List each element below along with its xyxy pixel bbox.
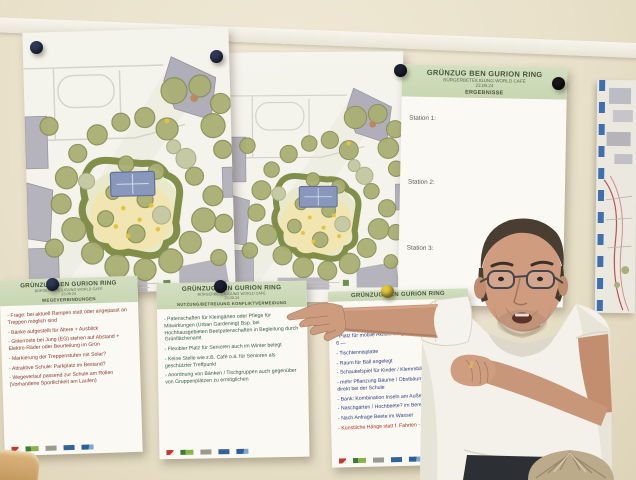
pointing-hand xyxy=(287,303,346,341)
partner-logos xyxy=(12,443,136,452)
push-pin xyxy=(552,77,565,90)
logo-blue xyxy=(218,449,229,454)
push-pin xyxy=(214,280,227,293)
push-pin xyxy=(381,285,394,298)
logo-gray xyxy=(200,449,211,454)
station-2-label: Station 2: xyxy=(408,179,435,187)
logo-green xyxy=(26,446,39,451)
logo-wave xyxy=(236,449,248,454)
flipchart-wege: GRÜNZUG BEN GURION RING BÜRGERBETEILIGUN… xyxy=(0,276,143,456)
push-pin xyxy=(394,64,407,77)
logo-wave xyxy=(81,444,93,449)
site-plan-left xyxy=(22,27,235,295)
push-pin xyxy=(30,41,43,54)
photo-meeting-room: GRÜNZUG BEN GURION RING BÜRGERBETEILIGUN… xyxy=(0,0,636,480)
push-pin xyxy=(46,278,59,291)
logo-green xyxy=(180,450,193,455)
logo-gray xyxy=(45,445,56,450)
push-pin xyxy=(210,50,223,63)
station-1-label: Station 1: xyxy=(409,115,436,123)
note-item: - Wegeverlauf passend zur Schule am Roll… xyxy=(9,369,134,389)
results-poster-header: GRÜNZUG BEN GURION RING BÜRGERBETEILIGUN… xyxy=(402,64,568,99)
presenter-man xyxy=(270,210,636,480)
poster-section: ERGEBNISSE xyxy=(404,88,565,97)
logo-red xyxy=(166,450,173,455)
site-plan-drawing xyxy=(22,27,235,295)
logo-blue xyxy=(63,445,74,450)
note-item: - Frage: bei aktuell Rampen statt oder a… xyxy=(7,307,132,327)
